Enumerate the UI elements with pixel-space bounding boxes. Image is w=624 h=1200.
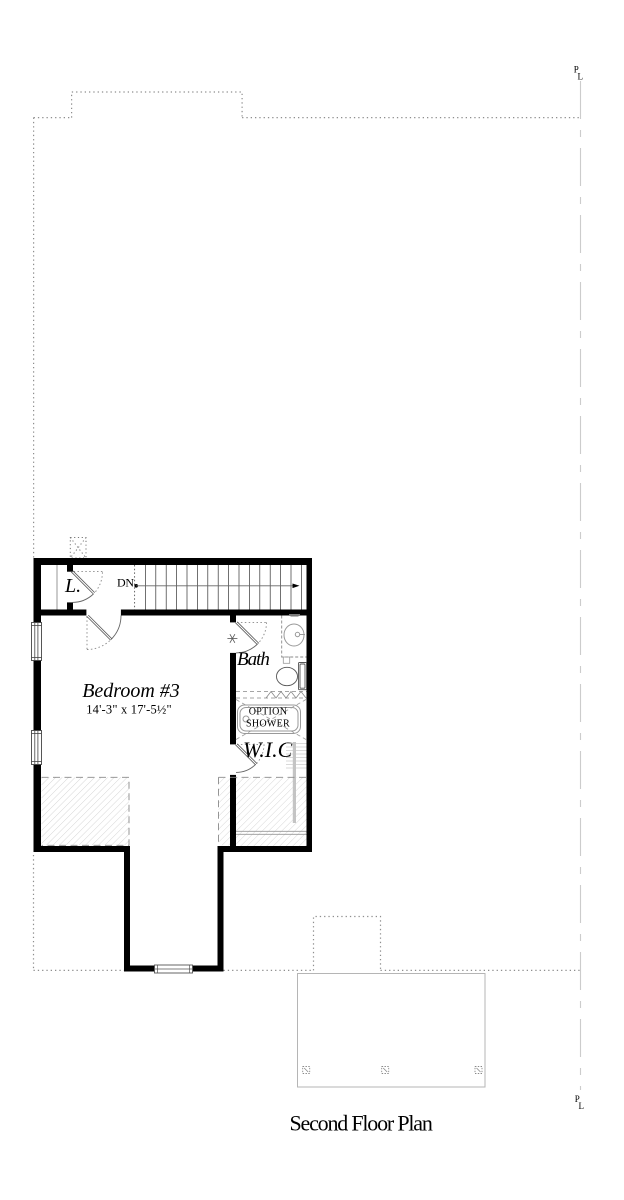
svg-text:DN: DN xyxy=(117,576,134,590)
svg-text:Bath: Bath xyxy=(237,649,269,670)
svg-text:W.I.C: W.I.C xyxy=(243,737,293,762)
svg-text:Second Floor Plan: Second Floor Plan xyxy=(290,1111,433,1136)
svg-text:OPTION: OPTION xyxy=(249,707,287,718)
svg-text:Bedroom #3: Bedroom #3 xyxy=(82,680,180,702)
svg-text:L: L xyxy=(579,1101,585,1111)
svg-text:L.: L. xyxy=(64,575,81,597)
svg-text:SHOWER: SHOWER xyxy=(246,719,290,730)
svg-text:L: L xyxy=(578,72,584,82)
svg-text:14'-3" x 17'-5½": 14'-3" x 17'-5½" xyxy=(86,703,172,717)
